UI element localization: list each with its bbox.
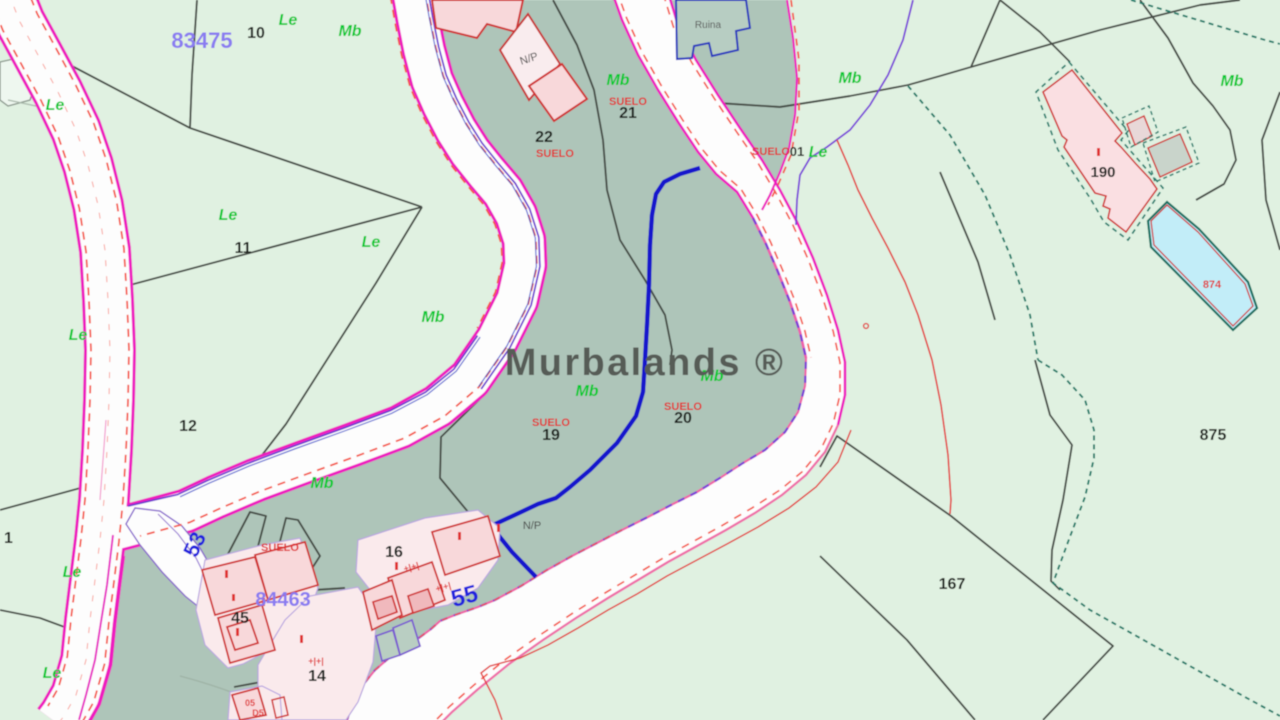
svg-text:190: 190 — [1090, 164, 1115, 181]
svg-text:Le: Le — [279, 12, 298, 29]
svg-text:11: 11 — [235, 240, 252, 257]
svg-text:12: 12 — [179, 418, 197, 435]
svg-text:+|+|: +|+| — [308, 656, 324, 666]
svg-text:SUELO: SUELO — [536, 148, 574, 160]
svg-text:83475: 83475 — [171, 28, 232, 53]
svg-text:10: 10 — [247, 25, 265, 42]
svg-text:1: 1 — [4, 530, 13, 547]
svg-text:N/P: N/P — [523, 520, 541, 532]
svg-text:Mb: Mb — [606, 72, 629, 89]
svg-text:Mb: Mb — [310, 475, 333, 492]
svg-text:Le: Le — [69, 327, 88, 344]
svg-text:Le: Le — [43, 665, 62, 682]
svg-text:D5: D5 — [252, 708, 264, 718]
svg-text:Le: Le — [46, 97, 65, 114]
svg-text:Mb: Mb — [421, 309, 444, 326]
svg-text:Mb: Mb — [338, 23, 361, 40]
svg-text:05: 05 — [245, 698, 255, 708]
svg-text:Le: Le — [219, 207, 238, 224]
svg-text:SUELO: SUELO — [752, 146, 790, 158]
svg-text:45: 45 — [231, 610, 249, 627]
svg-text:Mb: Mb — [575, 383, 598, 400]
svg-text:19: 19 — [542, 427, 560, 444]
svg-text:Le: Le — [809, 144, 828, 161]
svg-text:01: 01 — [790, 144, 804, 159]
svg-text:21: 21 — [619, 105, 637, 122]
svg-text:Mb: Mb — [1220, 73, 1243, 90]
svg-text:16: 16 — [385, 544, 403, 561]
svg-text:Le: Le — [63, 564, 82, 581]
svg-text:167: 167 — [939, 576, 966, 593]
svg-text:14: 14 — [308, 668, 326, 685]
svg-text:84463: 84463 — [255, 589, 311, 611]
svg-text:22: 22 — [535, 129, 553, 146]
svg-text:Ruina: Ruina — [695, 20, 722, 31]
svg-text:SUELO: SUELO — [261, 542, 299, 554]
svg-text:Murbalands ®: Murbalands ® — [505, 342, 786, 384]
svg-text:875: 875 — [1200, 427, 1227, 444]
svg-text:Mb: Mb — [838, 70, 861, 87]
svg-text:874: 874 — [1203, 279, 1222, 291]
svg-text:20: 20 — [674, 410, 692, 427]
svg-text:Le: Le — [362, 234, 381, 251]
